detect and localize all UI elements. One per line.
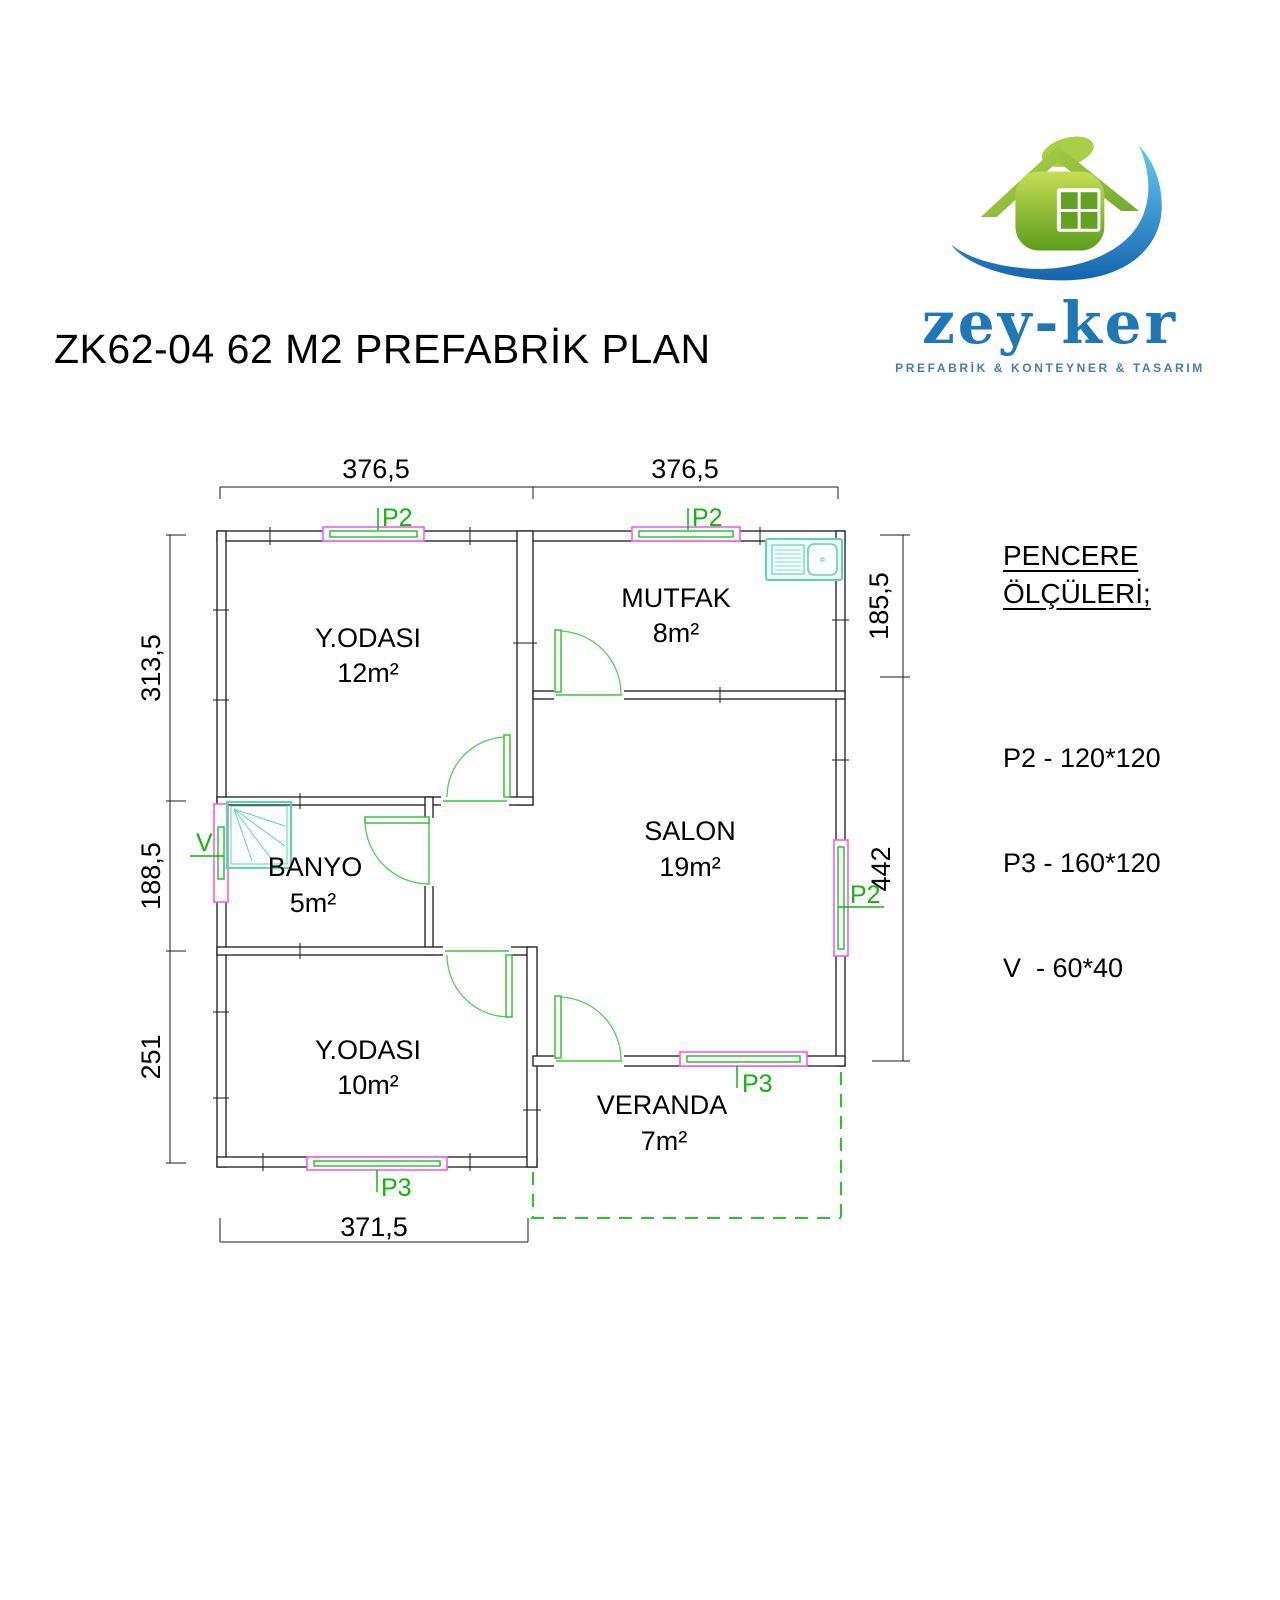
room-area-bedroom10: 10m² [337, 1070, 399, 1100]
window-p3-salon [680, 1052, 807, 1066]
room-labels: Y.ODASI 12m² MUTFAK 8m² BANYO 5m² SALON … [268, 583, 736, 1156]
wall-right [836, 531, 845, 1066]
dim-right-1: 185,5 [864, 572, 894, 640]
tag-v-bath: V [196, 829, 213, 857]
door-kitchen [555, 630, 621, 694]
door-bedroom10 [447, 955, 512, 1017]
dim-left-1: 313,5 [136, 634, 166, 702]
room-name-bath: BANYO [268, 852, 363, 882]
room-area-bedroom12: 12m² [337, 658, 399, 688]
door-bedroom12 [447, 735, 510, 797]
dim-left-3: 251 [136, 1034, 166, 1079]
floor-plan: 376,5 376,5 313,5 188,5 251 185,5 442 37… [0, 0, 1280, 1600]
page: ZK62-04 62 M2 PREFABRİK PLAN [0, 0, 1280, 1600]
room-name-salon: SALON [644, 816, 736, 846]
tag-p3-bedroom10: P3 [381, 1174, 412, 1202]
room-name-bedroom12: Y.ODASI [315, 623, 421, 653]
tag-p3-salon: P3 [742, 1070, 773, 1098]
door-veranda [555, 996, 621, 1060]
room-name-kitchen: MUTFAK [621, 583, 731, 613]
door-bath [365, 817, 429, 884]
dim-bottom-1: 371,5 [340, 1212, 408, 1242]
room-name-bedroom10: Y.ODASI [315, 1035, 421, 1065]
wall-divider-bedroom-kitchen [517, 531, 533, 805]
room-area-kitchen: 8m² [653, 618, 700, 648]
dim-top-2: 376,5 [651, 454, 719, 484]
kitchen-sink-icon [766, 539, 842, 580]
dim-top-1: 376,5 [342, 454, 410, 484]
room-name-veranda: VERANDA [597, 1090, 728, 1120]
tag-p2-top-left: P2 [382, 504, 413, 532]
tag-p2-top-right: P2 [692, 504, 723, 532]
room-area-veranda: 7m² [641, 1126, 688, 1156]
window-v-bath [214, 804, 228, 902]
window-p2-top-right [632, 527, 740, 541]
room-area-bath: 5m² [290, 888, 337, 918]
window-p2-salon-right [834, 840, 848, 956]
tag-p2-salon-right: P2 [850, 881, 881, 909]
window-p3-bedroom10 [307, 1157, 447, 1170]
room-area-salon: 19m² [659, 852, 721, 882]
dim-left-2: 188,5 [136, 842, 166, 910]
